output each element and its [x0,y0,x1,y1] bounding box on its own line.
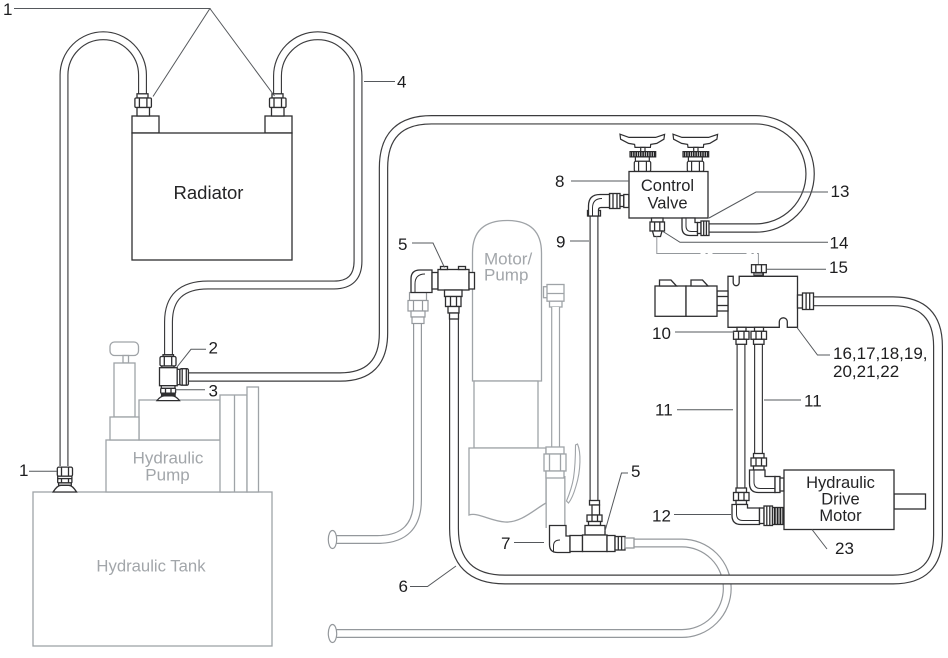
svg-text:11: 11 [655,401,673,420]
svg-text:2: 2 [209,339,218,358]
svg-text:16,17,18,19,: 16,17,18,19, [833,344,928,363]
svg-text:Motor: Motor [819,507,862,525]
svg-text:13: 13 [831,182,850,201]
svg-text:5: 5 [398,235,407,254]
svg-text:10: 10 [652,324,671,343]
svg-text:11: 11 [804,392,822,411]
svg-text:15: 15 [829,258,848,277]
svg-text:Hydraulic: Hydraulic [806,474,875,492]
svg-text:Hydraulic Tank: Hydraulic Tank [96,557,206,576]
svg-text:1: 1 [3,0,12,19]
svg-text:1: 1 [19,461,28,480]
svg-text:Radiator: Radiator [174,182,244,203]
svg-text:Control: Control [641,177,694,195]
svg-text:3: 3 [209,382,218,401]
svg-text:Valve: Valve [647,195,687,213]
svg-text:8: 8 [555,172,564,191]
svg-text:4: 4 [397,73,406,92]
svg-text:5: 5 [631,462,640,481]
svg-text:20,21,22: 20,21,22 [833,362,899,381]
svg-text:9: 9 [556,233,565,252]
svg-text:7: 7 [501,534,510,553]
svg-text:6: 6 [399,577,408,596]
svg-text:12: 12 [652,507,671,526]
svg-text:Pump: Pump [145,466,189,485]
svg-text:14: 14 [830,234,849,253]
svg-text:Pump: Pump [484,266,528,285]
svg-text:23: 23 [835,539,854,558]
svg-text:Drive: Drive [821,491,860,509]
